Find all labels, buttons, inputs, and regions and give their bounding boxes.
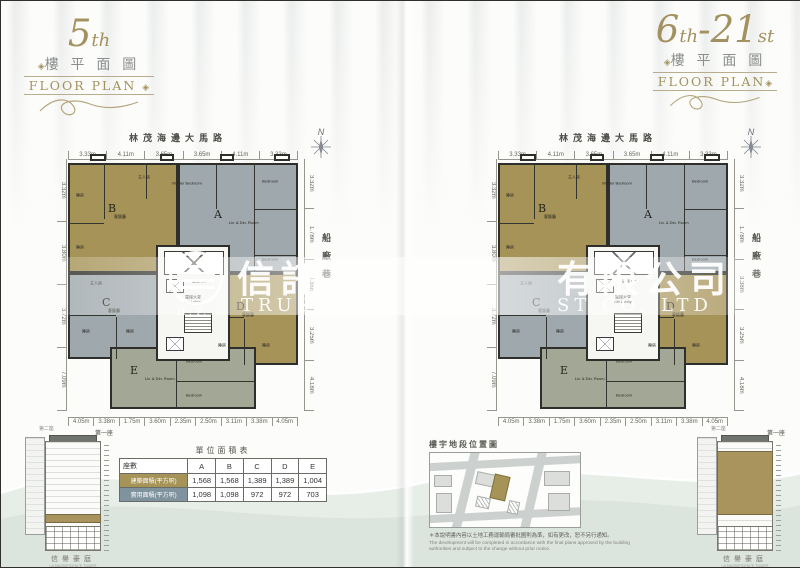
room-label: 主人房	[568, 175, 580, 180]
balcony	[520, 154, 536, 161]
diamond-ornament: ◈	[142, 83, 149, 93]
cell: 1,098	[216, 488, 244, 502]
balcony	[704, 154, 720, 161]
unit-e-label: ELiv. & Din. Room	[130, 365, 189, 385]
cell: 1,568	[188, 474, 216, 488]
balcony	[650, 154, 664, 161]
lobby-hall-box	[594, 251, 654, 275]
building-elevation-6th-21st: 第二座 第一座 信譽豪庭 LA MAGNIFICENCE TOWER	[697, 425, 793, 567]
dim-label: 3.80m	[57, 222, 66, 285]
lift-lobby-label: 電梯大堂 Lift Lobby	[160, 295, 226, 304]
floor-number: 6th-21st	[635, 11, 795, 48]
room-label: 主人房	[90, 281, 102, 286]
street-label: 林茂海邊大馬路	[508, 131, 708, 144]
floor-plan-6th-21st: 林茂海邊大馬路 N 3.33m4.11m3.65m3.65m4.11m3.33m	[488, 137, 788, 442]
dim-label: 3.11m	[222, 418, 247, 426]
room-label: Bedroom	[186, 359, 202, 364]
dim-label: 3.80m	[487, 222, 496, 285]
wall-partition	[674, 319, 675, 365]
unit-letter: C	[102, 296, 110, 309]
room-label: Bedroom	[692, 257, 708, 262]
dim-label: 3.38m	[247, 418, 272, 426]
col-header: 座數	[120, 459, 188, 474]
title-english-text: FLOOR PLAN	[29, 78, 137, 93]
cell: 703	[299, 488, 327, 502]
floor-plan-title-5th: 5th ◈樓 平 面 圖 FLOOR PLAN ◈	[9, 15, 169, 124]
title-chinese: ◈樓 平 面 圖	[635, 50, 795, 70]
wall-partition	[546, 317, 547, 359]
unit-sub: Liv. & Din. Room	[575, 377, 605, 381]
dim-label: 3.38m	[735, 260, 744, 310]
tower-front	[717, 441, 773, 551]
col-b: B	[216, 459, 244, 474]
room-label: 睡房	[218, 343, 226, 348]
room-label: 睡房	[76, 193, 84, 198]
floor-number: 5th	[9, 15, 169, 52]
room-label: 睡房	[512, 329, 520, 334]
unit-letter: A	[214, 208, 222, 221]
dim-label: 3.60m	[145, 418, 170, 426]
unit-letter: B	[538, 202, 546, 215]
dim-label: 4.18m	[735, 361, 744, 411]
location-map-title: 樓宇地段位置圖	[429, 439, 649, 450]
title-english: FLOOR PLAN ◈	[24, 76, 154, 95]
floor-plan-5th: 林茂海邊大馬路 N 3.33m4.11m3.65m3.65m4.11m3.33m	[58, 137, 358, 442]
disclaimer-english: The development will be completed in acc…	[429, 540, 645, 552]
map-building	[434, 475, 452, 487]
flourish-swirl	[9, 95, 169, 124]
room-label: Master Bedroom	[172, 181, 202, 186]
podium	[717, 526, 773, 551]
tower-back	[697, 437, 717, 535]
unit-a-label: ALiv. & Din. Room	[644, 209, 703, 229]
area-table-title: 單位面積表	[119, 445, 327, 456]
unit-sub: 客飯廳	[538, 309, 550, 313]
brochure-spread: 5th ◈樓 平 面 圖 FLOOR PLAN ◈ 6th-21st ◈樓 平 …	[0, 0, 800, 568]
lift-label-cn: 電梯	[192, 279, 200, 284]
dim-label: 3.72m	[57, 285, 66, 348]
highlight-floor-band	[45, 514, 101, 523]
room-label: 睡房	[556, 329, 564, 334]
diamond-ornament: ◈	[765, 79, 772, 89]
wall-partition	[68, 223, 104, 224]
unit-letter: E	[130, 364, 138, 377]
map-building	[544, 471, 570, 486]
room-label: Bedroom	[262, 257, 278, 262]
room-label: 睡房	[262, 343, 270, 348]
wall-partition	[104, 163, 105, 219]
dimension-col-right: 3.32m1.78m3.38m3.25m4.18m	[734, 159, 744, 411]
highlight-floor-band	[717, 451, 773, 515]
table-row: 建築面積(平方呎) 1,568 1,568 1,389 1,389 1,004	[120, 474, 327, 488]
dim-label: 3.25m	[735, 310, 744, 360]
dim-label: 4.18m	[305, 361, 314, 411]
floor-number-suffix: th	[679, 26, 698, 47]
title-chinese-text: 樓 平 面 圖	[45, 56, 141, 72]
unit-c-label: C客飯廳	[532, 297, 556, 317]
site-location-section: 樓宇地段位置圖 ＊本說明書內容以土地工務運輸局審批圖則為準，如有更改，恕不另行通…	[429, 439, 649, 561]
cell: 1,004	[299, 474, 327, 488]
unit-sub: Liv. & Din. Room	[145, 377, 175, 381]
unit-letter: C	[532, 296, 540, 309]
lift-icon	[166, 337, 184, 351]
balcony	[274, 154, 290, 161]
unit-letter: D	[236, 300, 245, 313]
cell: 1,098	[188, 488, 216, 502]
dim-label: 1.78m	[735, 209, 744, 259]
dimension-col-left: 3.32m3.80m3.72m7.09m	[487, 159, 497, 411]
col-d: D	[271, 459, 299, 474]
row-label-usable: 實用面積(平方呎)	[120, 488, 188, 502]
room-label: Bedroom	[616, 393, 632, 398]
room-label: Master Bedroom	[602, 181, 632, 186]
stairs-icon	[614, 313, 642, 333]
table-row: 實用面積(平方呎) 1,098 1,098 972 972 703	[120, 488, 327, 502]
building-name-en: LA MAGNIFICENCE TOWER	[719, 564, 771, 568]
dim-label: 7.09m	[57, 348, 66, 411]
cell: 1,568	[216, 474, 244, 488]
tower-back	[25, 437, 45, 535]
unit-sub: 客飯廳	[544, 215, 556, 219]
diamond-ornament: ◈	[38, 61, 45, 71]
title-chinese: ◈樓 平 面 圖	[9, 54, 169, 74]
building-elevation-5th: 第二座 第一座 信譽豪庭 LA MAGNIFICENCE TOWER	[25, 425, 121, 567]
unit-a-label: ALiv. & Din. Room	[214, 209, 273, 229]
lift-label-cn: 電梯	[622, 279, 630, 284]
compass-n-label: N	[748, 127, 755, 137]
row-label-gross: 建築面積(平方呎)	[120, 474, 188, 488]
disclaimer-chinese: ＊本說明書內容以土地工務運輸局審批圖則為準，如有更改，恕不另行通知。	[429, 531, 561, 539]
room-label: 睡房	[692, 343, 700, 348]
floor-plan-title-6th-21st: 6th-21st ◈樓 平 面 圖 FLOOR PLAN◈	[635, 11, 795, 118]
cell: 1,389	[271, 474, 299, 488]
room-label: 睡房	[648, 343, 656, 348]
unit-e-label: ELiv. & Din. Room	[560, 365, 619, 385]
building-name-cn: 信譽豪庭	[687, 554, 800, 564]
dim-label: 3.65m	[614, 151, 652, 159]
building-footprint: 電梯 Lift 電梯大堂 Lift Lobby B客飯廳 ALiv. & Din…	[498, 159, 728, 411]
unit-d-label: D客飯廳	[666, 301, 690, 321]
unit-letter: D	[666, 300, 675, 313]
wall-partition	[146, 163, 147, 199]
dim-label: 7.09m	[487, 348, 496, 411]
dimension-col-left: 3.32m3.80m3.72m7.09m	[57, 159, 67, 411]
map-building	[436, 493, 452, 513]
dim-label: 1.75m	[550, 418, 575, 426]
unit-sub: 客飯廳	[672, 313, 684, 317]
unit-c-label: C客飯廳	[102, 297, 126, 317]
lift-icon	[596, 337, 614, 351]
compass-n-label: N	[318, 127, 325, 137]
lift-icon	[596, 279, 614, 293]
unit-b-label: B客飯廳	[538, 203, 562, 223]
unit-sub: 客飯廳	[242, 313, 254, 317]
room-label: 睡房	[506, 193, 514, 198]
lobby-hall-box	[164, 251, 224, 275]
wall-partition	[116, 317, 117, 359]
col-e: E	[299, 459, 327, 474]
dim-label: 3.38m	[305, 260, 314, 310]
unit-letter: A	[644, 208, 652, 221]
unit-sub: Liv. & Din. Room	[229, 221, 259, 225]
dim-label: 3.25m	[305, 310, 314, 360]
tower-front-label: 第一座	[767, 429, 785, 437]
room-label: 主人房	[520, 281, 532, 286]
lane-label: 船廠巷	[750, 233, 763, 287]
diamond-ornament: ◈	[664, 57, 671, 67]
room-label: 睡房	[506, 245, 514, 250]
lift-label: 電梯 Lift	[614, 279, 644, 284]
dim-label: 4.05m	[498, 418, 524, 426]
room-label: 睡房	[76, 245, 84, 250]
dim-label: 1.78m	[305, 209, 314, 259]
dim-label: 3.65m	[184, 151, 222, 159]
unit-sub: 客飯廳	[114, 215, 126, 219]
title-chinese-text: 樓 平 面 圖	[671, 52, 767, 68]
floor-ticks	[776, 441, 781, 551]
map-road	[429, 455, 581, 472]
title-english-text: FLOOR PLAN	[658, 74, 766, 89]
dim-label: 3.38m	[524, 418, 549, 426]
unit-sub: Liv. & Din. Room	[659, 221, 689, 225]
room-label: 睡房	[82, 329, 90, 334]
dim-label: 3.72m	[487, 285, 496, 348]
dim-label: 3.32m	[487, 159, 496, 222]
tower-back-label: 第二座	[39, 425, 54, 432]
wall-partition	[534, 163, 535, 219]
floor-number-big2: -21	[698, 8, 758, 51]
building-name-cn: 信譽豪庭	[15, 554, 131, 564]
dim-label: 3.32m	[735, 159, 744, 209]
dimension-row-bottom: 4.05m3.38m1.75m3.60m2.35m2.50m3.11m3.38m…	[498, 417, 728, 426]
cell: 972	[271, 488, 299, 502]
balcony	[160, 154, 174, 161]
room-label: Bedroom	[616, 359, 632, 364]
wall-partition	[216, 163, 217, 209]
table-header-row: 座數 A B C D E	[120, 459, 327, 474]
room-label: 睡房	[126, 329, 134, 334]
col-a: A	[188, 459, 216, 474]
room-label: Bedroom	[692, 179, 708, 184]
wall-partition	[244, 319, 245, 365]
wall-partition	[576, 163, 577, 199]
wall-partition	[646, 163, 647, 209]
building-name-en: LA MAGNIFICENCE TOWER	[47, 564, 99, 568]
map-building	[548, 493, 570, 511]
stairs-icon	[184, 313, 212, 333]
lift-label-en: Lift	[631, 279, 636, 284]
cell: 1,389	[243, 474, 271, 488]
balcony	[220, 154, 234, 161]
lift-label-en: Lift	[201, 279, 206, 284]
dim-label: 3.60m	[575, 418, 600, 426]
col-c: C	[243, 459, 271, 474]
wall-partition	[684, 255, 728, 256]
lift-lobby-en: Lift Lobby	[590, 300, 656, 305]
dim-label: 3.32m	[305, 159, 314, 209]
dim-label: 4.11m	[537, 151, 575, 159]
dim-label: 2.35m	[601, 418, 626, 426]
lift-lobby-en: Lift Lobby	[160, 300, 226, 305]
unit-letter: E	[560, 364, 568, 377]
title-english: FLOOR PLAN◈	[653, 72, 777, 91]
balcony	[90, 154, 106, 161]
floor-number-big: 5	[68, 12, 92, 55]
dim-label: 4.05m	[273, 418, 298, 426]
flourish-swirl	[635, 91, 795, 118]
street-label: 林茂海邊大馬路	[78, 131, 278, 144]
dim-label: 3.32m	[57, 159, 66, 222]
room-label: Bedroom	[186, 393, 202, 398]
wall-partition	[254, 255, 298, 256]
floor-number-suffix2: st	[758, 26, 774, 47]
tower-back-label: 第二座	[711, 425, 726, 432]
lane-label: 船廠巷	[320, 233, 333, 287]
tower-front-label: 第一座	[95, 429, 113, 437]
room-label: 主人房	[138, 175, 150, 180]
wall-partition	[498, 223, 534, 224]
dim-label: 1.75m	[120, 418, 145, 426]
cell: 972	[243, 488, 271, 502]
building-footprint: 電梯 Lift 電梯大堂 Lift Lobby B客飯廳 ALiv. & Din…	[68, 159, 298, 411]
room-label: Bedroom	[262, 179, 278, 184]
dimension-col-right: 3.32m1.78m3.38m3.25m4.18m	[304, 159, 314, 411]
podium	[45, 526, 101, 551]
unit-b-label: B客飯廳	[108, 203, 132, 223]
lift-label: 電梯 Lift	[184, 279, 214, 284]
tower-front	[45, 441, 101, 551]
unit-d-label: D客飯廳	[236, 301, 260, 321]
location-map	[429, 452, 581, 528]
dim-label: 2.50m	[196, 418, 221, 426]
balcony	[590, 154, 604, 161]
dim-label: 3.11m	[652, 418, 677, 426]
floor-number-suffix: th	[91, 30, 110, 51]
unit-area-table: 單位面積表 座數 A B C D E 建築面積(平方呎) 1,568 1,568…	[119, 445, 327, 502]
floor-number-big: 6	[656, 8, 680, 51]
dim-label: 2.50m	[626, 418, 651, 426]
dim-label: 4.11m	[107, 151, 145, 159]
floor-ticks	[104, 441, 109, 551]
lift-lobby-label: 電梯大堂 Lift Lobby	[590, 295, 656, 304]
unit-sub: 客飯廳	[108, 309, 120, 313]
unit-letter: B	[108, 202, 116, 215]
lift-icon	[166, 279, 184, 293]
dim-label: 2.35m	[171, 418, 196, 426]
page-gutter	[396, 1, 414, 567]
